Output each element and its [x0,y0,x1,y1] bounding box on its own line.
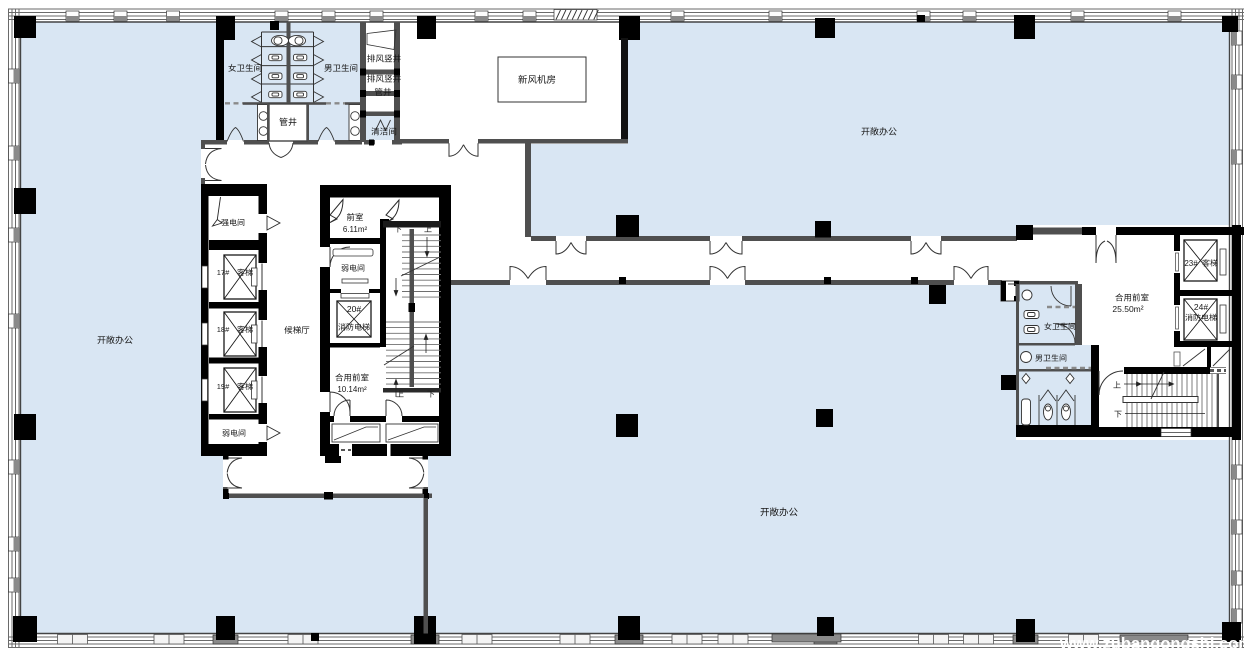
svg-text:6.11m²: 6.11m² [343,225,368,234]
svg-text:25.50m²: 25.50m² [1112,304,1143,314]
svg-text:18#: 18# [217,325,230,334]
svg-text:17#: 17# [217,268,230,277]
svg-text:20#: 20# [347,304,361,314]
svg-text:19#: 19# [217,382,230,391]
svg-text:23#: 23# [1184,259,1198,268]
svg-text:www.zubangongshi.com: www.zubangongshi.com [1059,634,1250,653]
svg-text:24#: 24# [1194,302,1208,312]
svg-text:10.14m²: 10.14m² [337,385,367,394]
